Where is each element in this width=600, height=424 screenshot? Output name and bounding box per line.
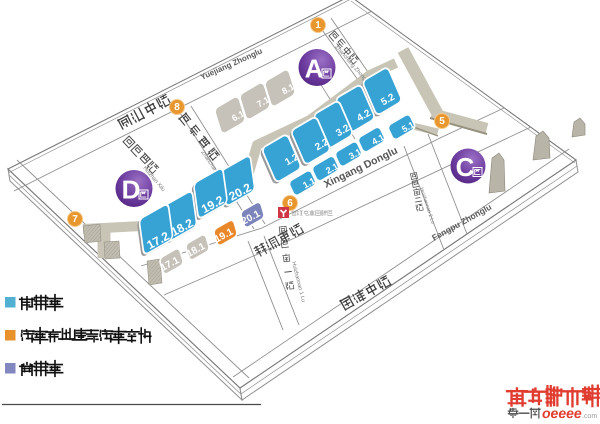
svg-text:5: 5	[439, 116, 445, 127]
svg-text:1: 1	[315, 20, 321, 31]
svg-text:7: 7	[72, 214, 78, 225]
svg-text:.com: .com	[582, 413, 597, 420]
svg-text:8: 8	[174, 102, 180, 113]
svg-text:A: A	[305, 54, 324, 84]
svg-text:oeeee: oeeee	[542, 405, 582, 421]
svg-text:C: C	[456, 152, 475, 182]
svg-text:D: D	[122, 175, 141, 205]
